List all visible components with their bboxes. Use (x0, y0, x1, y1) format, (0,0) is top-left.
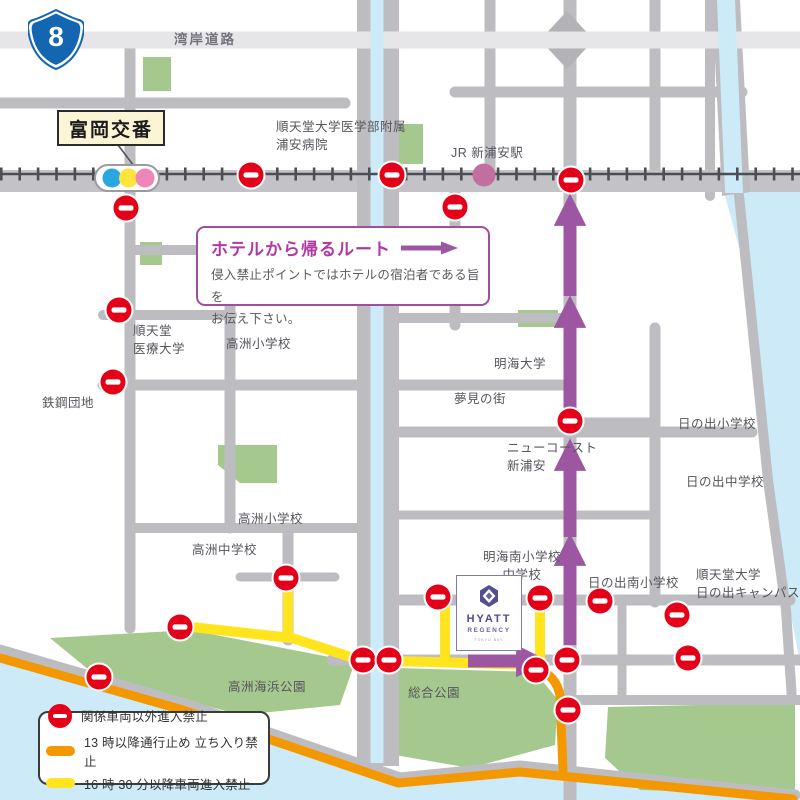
no-entry-icon (48, 704, 72, 728)
no-entry-sign (375, 646, 404, 675)
route-info-title: ホテルから帰るルート (211, 235, 391, 260)
no-entry-sign (112, 194, 141, 223)
place-label-takasu-junior-high: 高洲中学校 (192, 541, 257, 559)
place-label-hospital: 順天堂大学医学部附属 浦安病院 (276, 118, 406, 154)
wangan-road (0, 32, 800, 49)
station-label: JR 新浦安駅 (451, 144, 523, 162)
place-label-hinode-minami-elementary: 日の出南小学校 (588, 574, 679, 592)
hotel-name-line2: REGENCY (467, 627, 510, 634)
place-label-takasu-elementary-north: 高洲小学校 (226, 335, 291, 353)
no-entry-sign (526, 584, 555, 613)
legend-row-orange: 13 時以降通行止め 立ち入り禁止 (48, 732, 260, 770)
place-label-tekko-danchi: 鉄鋼団地 (42, 394, 94, 412)
place-label-hinode-junior-high: 日の出中学校 (686, 473, 764, 491)
no-entry-sign (556, 407, 585, 436)
route-number: 8 (48, 21, 64, 52)
police-box-label: 富岡交番 (69, 115, 153, 142)
no-entry-sign (237, 161, 266, 190)
station-marker (473, 164, 496, 187)
capsule-pink-dot (136, 169, 155, 188)
no-entry-sign (553, 646, 582, 675)
road-label-wangan: 湾岸道路 (174, 30, 236, 50)
hotel-name-line1: HYATT (467, 613, 512, 625)
legend-label-no-entry: 関係車両以外進入禁止 (81, 706, 208, 725)
no-entry-sign (441, 193, 470, 222)
capsule-yellow-dot (119, 169, 138, 188)
no-entry-sign (674, 644, 703, 673)
legend-row-no-entry: 関係車両以外進入禁止 (48, 704, 260, 728)
no-entry-sign (557, 166, 586, 195)
no-entry-sign (166, 613, 195, 642)
no-entry-sign (99, 368, 128, 397)
route-shield: 8 (28, 8, 84, 70)
legend-label-orange: 13 時以降通行止め 立ち入り禁止 (84, 732, 260, 770)
place-label-new-coast: ニューコースト 新浦安 (507, 439, 597, 475)
no-entry-sign (663, 601, 692, 630)
hyatt-logo-icon (477, 584, 501, 608)
place-label-yumemi-no-machi: 夢見の街 (454, 390, 506, 408)
yellow-route-icon (46, 778, 75, 788)
map-screenshot: 8 湾岸道路 順天堂大学医学部附属 浦安病院 JR 新浦安駅 順天堂 医療大学 … (0, 0, 800, 800)
place-label-takasu-kaihin-park: 高洲海浜公園 (228, 678, 306, 696)
place-label-takasu-elementary-south: 高洲小学校 (238, 510, 303, 528)
place-label-hinode-elementary: 日の出小学校 (678, 415, 756, 433)
no-entry-sign (349, 646, 378, 675)
capsule-blue-dot (103, 169, 122, 188)
no-entry-sign (105, 296, 134, 325)
no-entry-sign (424, 583, 453, 612)
place-label-juntendo-medical-univ: 順天堂 医療大学 (133, 322, 185, 358)
place-label-sogo-park: 総合公園 (408, 684, 460, 702)
no-entry-sign (85, 663, 114, 692)
no-entry-sign (272, 564, 301, 593)
legend-row-yellow: 16 時 30 分以降車両進入禁止 (48, 774, 260, 793)
route-info-body: 侵入禁止ポイントではホテルの宿泊者である旨を お伝え下さい。 (211, 265, 488, 331)
no-entry-sign (378, 161, 407, 190)
map-legend: 関係車両以外進入禁止 13 時以降通行止め 立ち入り禁止 16 時 30 分以降… (38, 711, 270, 785)
route-info-box: ホテルから帰るルート 侵入禁止ポイントではホテルの宿泊者である旨を お伝え下さい… (196, 226, 490, 306)
police-box-callout: 富岡交番 (57, 110, 165, 146)
no-entry-sign (522, 656, 551, 685)
place-label-meikai-univ: 明海大学 (494, 355, 546, 373)
hotel-logo-box: HYATT REGENCY TOKYO BAY (456, 575, 522, 651)
no-entry-sign (554, 696, 583, 725)
orange-route-icon (46, 746, 75, 756)
hotel-name-line3: TOKYO BAY (475, 638, 504, 642)
legend-label-yellow: 16 時 30 分以降車両進入禁止 (84, 774, 251, 793)
right-arrow-icon (399, 240, 461, 256)
place-label-juntendo-hinode-campus: 順天堂大学 日の出キャンパス (696, 566, 800, 602)
